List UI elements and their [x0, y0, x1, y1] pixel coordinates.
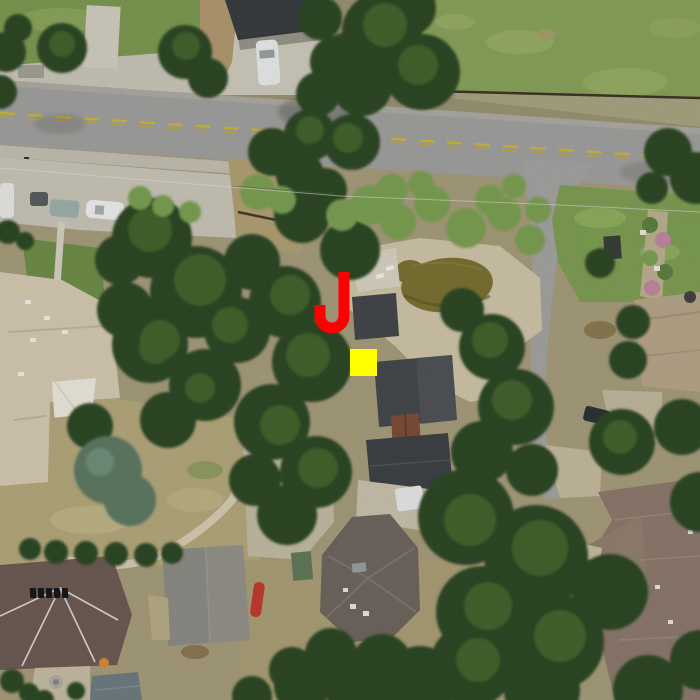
target-square-marker — [350, 349, 377, 376]
aerial-map-viewport[interactable] — [0, 0, 700, 700]
aerial-photo — [0, 0, 700, 700]
